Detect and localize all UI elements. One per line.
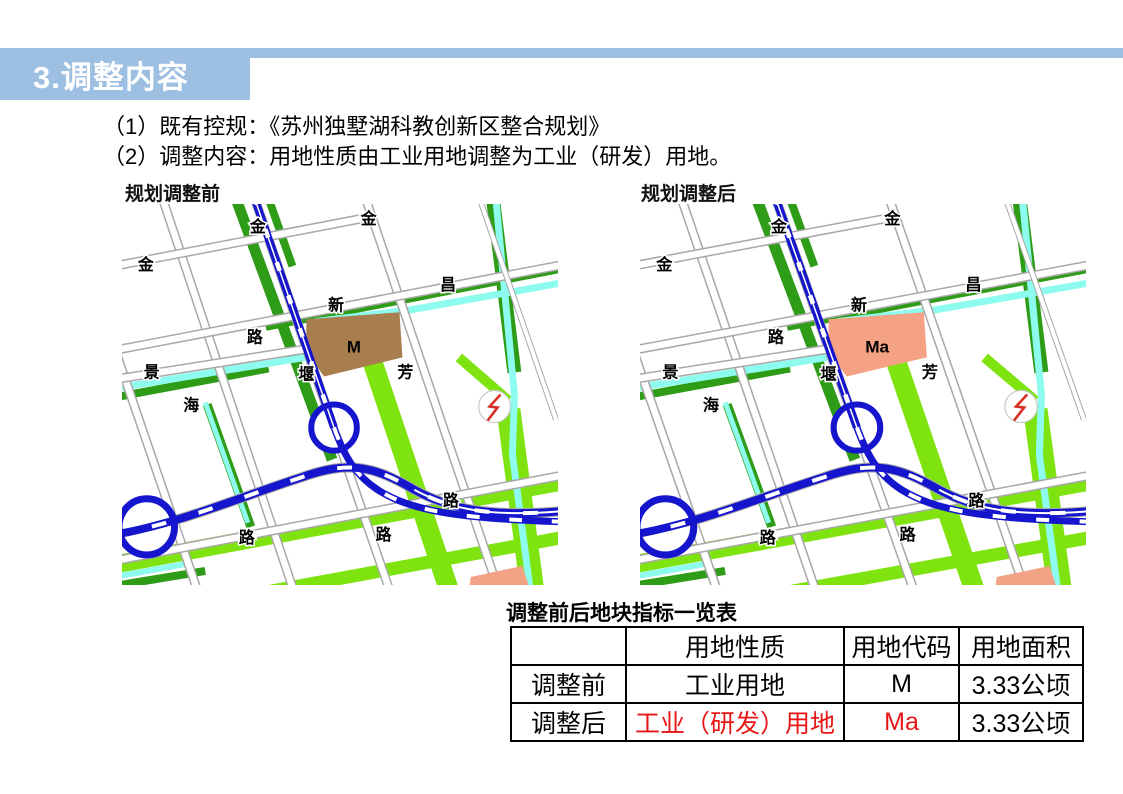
map-after-plan: 金金金昌新路堰芳景海路路路Ma — [640, 204, 1086, 585]
header-code: 用地代码 — [844, 627, 959, 665]
street-label: 昌 — [440, 276, 456, 294]
street-label: 新 — [328, 295, 344, 314]
street-label: 海 — [183, 395, 199, 414]
plot-indicator-table: 用地性质 用地代码 用地面积 调整前 工业用地 M 3.33公顷 调整后 工业（… — [510, 626, 1084, 742]
table-title: 调整前后地块指标一览表 — [506, 597, 737, 627]
slide-page: 3.调整内容 （1）既有控规：《苏州独墅湖科教创新区整合规划》 （2）调整内容：… — [0, 0, 1123, 794]
street-label: 海 — [703, 396, 719, 415]
street-label: 路 — [239, 528, 256, 547]
section-title: 3.调整内容 — [0, 52, 189, 97]
street-label: 金 — [770, 217, 788, 236]
planning-map: 金金金昌新路堰芳景海路路路Ma — [640, 204, 1086, 585]
row-area: 3.33公顷 — [959, 703, 1083, 741]
street-label: 路 — [443, 491, 460, 510]
street-label: 金 — [360, 209, 378, 228]
row-nature: 工业用地 — [626, 665, 844, 703]
street-label: 金 — [249, 217, 267, 236]
street-label: 堰 — [820, 366, 836, 384]
row-area: 3.33公顷 — [959, 665, 1083, 703]
substation-lightning-icon — [1005, 390, 1037, 422]
parcel-code-label: Ma — [865, 336, 889, 356]
substation-lightning-icon — [479, 390, 511, 422]
map-before-plan: 金金金昌新路堰芳景海路路路M — [122, 204, 558, 585]
street-label: 金 — [137, 255, 155, 274]
row-label: 调整后 — [511, 703, 626, 741]
planning-map: 金金金昌新路堰芳景海路路路M — [122, 204, 558, 585]
map-title-after: 规划调整后 — [641, 179, 736, 206]
header-area: 用地面积 — [959, 627, 1083, 665]
street-label: 金 — [655, 255, 673, 274]
street-label: 景 — [662, 364, 678, 382]
row-label: 调整前 — [511, 665, 626, 703]
street-label: 路 — [376, 525, 393, 544]
street-label: 新 — [851, 295, 867, 314]
header-nature: 用地性质 — [626, 627, 844, 665]
street-label: 景 — [144, 363, 160, 381]
street-label: 路 — [899, 525, 916, 544]
street-label: 路 — [768, 327, 785, 346]
street-label: 堰 — [298, 365, 314, 383]
street-label: 昌 — [965, 276, 981, 294]
street-label: 路 — [247, 327, 264, 346]
row-nature: 工业（研发）用地 — [626, 703, 844, 741]
intro-line-2: （2）调整内容：用地性质由工业用地调整为工业（研发）用地。 — [103, 139, 731, 171]
map-title-before: 规划调整前 — [125, 179, 220, 206]
row-code: M — [844, 665, 959, 703]
section-title-box: 3.调整内容 — [0, 48, 250, 100]
intro-line-1: （1）既有控规：《苏州独墅湖科教创新区整合规划》 — [103, 109, 610, 141]
table-row: 调整后 工业（研发）用地 Ma 3.33公顷 — [511, 703, 1083, 741]
table-header-row: 用地性质 用地代码 用地面积 — [511, 627, 1083, 665]
street-label: 金 — [883, 209, 901, 228]
parcel-code-label: M — [347, 337, 361, 356]
street-label: 芳 — [397, 362, 413, 381]
street-label: 路 — [968, 491, 985, 510]
street-label: 路 — [760, 528, 777, 547]
orange-parcel — [469, 566, 530, 585]
row-code: Ma — [844, 703, 959, 741]
street-label: 芳 — [922, 363, 938, 382]
orange-parcel — [995, 566, 1058, 585]
table-row: 调整前 工业用地 M 3.33公顷 — [511, 665, 1083, 703]
header-empty — [511, 627, 626, 665]
